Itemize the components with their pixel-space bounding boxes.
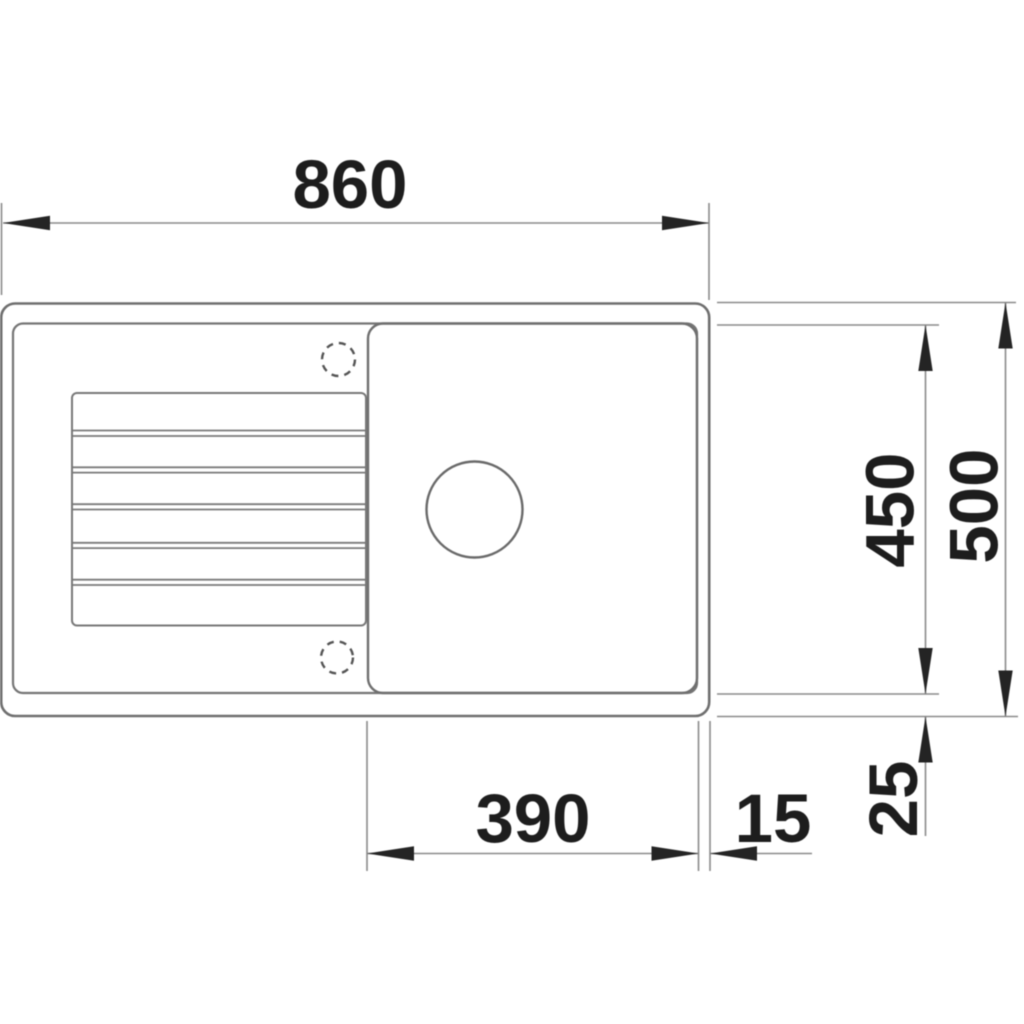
svg-text:25: 25 bbox=[855, 761, 932, 838]
svg-text:860: 860 bbox=[292, 146, 407, 223]
svg-text:15: 15 bbox=[735, 780, 812, 857]
svg-text:500: 500 bbox=[936, 448, 1013, 563]
svg-text:450: 450 bbox=[852, 452, 929, 567]
svg-text:390: 390 bbox=[475, 780, 590, 857]
